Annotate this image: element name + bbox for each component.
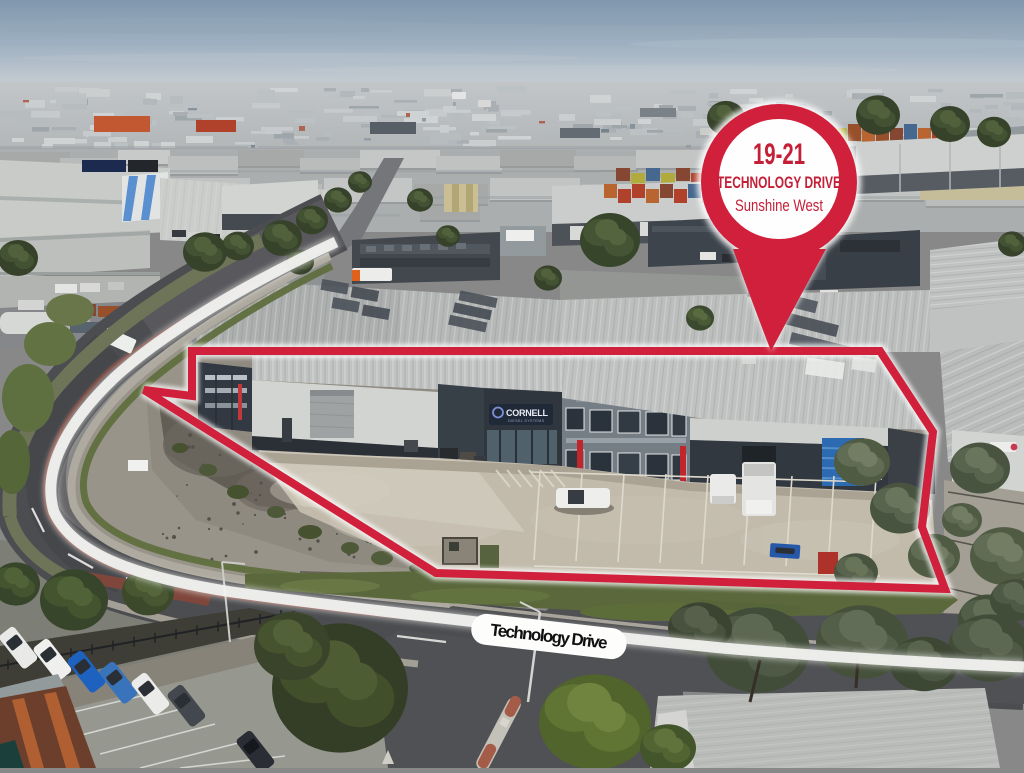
svg-text:CORNELL: CORNELL	[506, 408, 549, 418]
svg-text:19-21: 19-21	[753, 138, 805, 171]
svg-text:DIESEL SYSTEMS: DIESEL SYSTEMS	[508, 419, 545, 423]
svg-text:Sunshine West: Sunshine West	[735, 196, 823, 215]
svg-text:TECHNOLOGY DRIVE: TECHNOLOGY DRIVE	[717, 173, 841, 192]
